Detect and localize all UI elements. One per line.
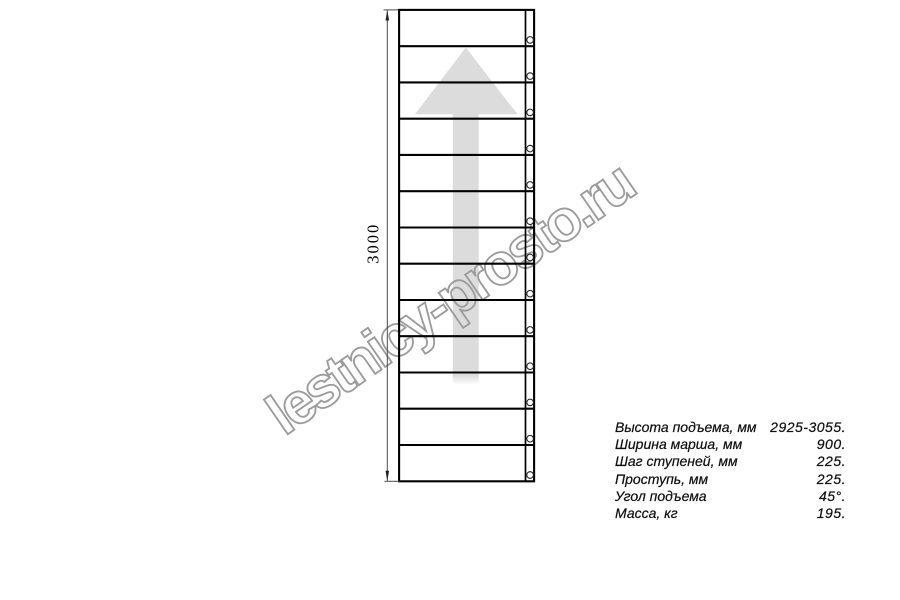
svg-text:3000: 3000 [363, 223, 382, 264]
